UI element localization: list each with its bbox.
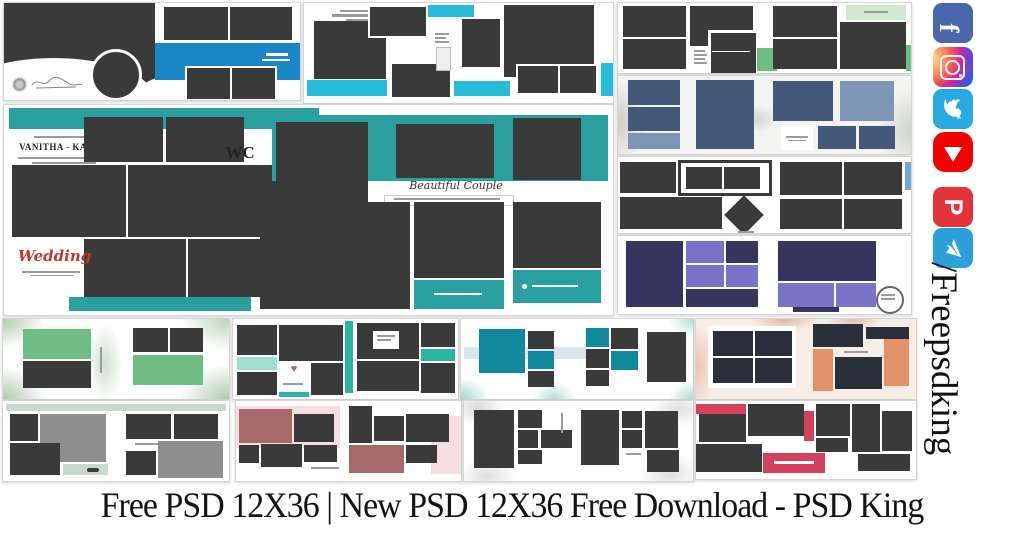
photo-placeholder bbox=[713, 331, 753, 356]
photo-placeholder bbox=[778, 283, 834, 307]
placeholder-text bbox=[774, 461, 814, 464]
placeholder-text bbox=[394, 198, 500, 200]
instagram-tile bbox=[933, 47, 973, 87]
color-block bbox=[804, 411, 814, 441]
caption-text: Free PSD 12X36 | New PSD 12X36 Free Down… bbox=[31, 484, 994, 526]
photo-placeholder bbox=[773, 39, 837, 69]
color-band bbox=[307, 80, 387, 96]
photo-placeholder bbox=[628, 80, 680, 105]
photo-placeholder bbox=[628, 107, 680, 131]
instagram-icon[interactable] bbox=[933, 47, 973, 87]
monogram-logo: WC bbox=[218, 143, 262, 163]
photo-placeholder bbox=[158, 441, 223, 478]
photo-placeholder bbox=[645, 411, 678, 448]
photo-placeholder bbox=[620, 162, 676, 193]
photo-placeholder bbox=[126, 451, 156, 475]
photo-placeholder bbox=[84, 117, 163, 162]
photo-placeholder bbox=[174, 414, 218, 439]
photo-placeholder bbox=[260, 202, 410, 309]
placeholder-text bbox=[694, 62, 707, 64]
placeholder-text bbox=[262, 59, 290, 61]
photo-placeholder bbox=[294, 414, 334, 442]
photo-placeholder bbox=[586, 328, 609, 347]
photo-placeholder bbox=[816, 438, 848, 452]
facebook-icon[interactable]: f bbox=[933, 3, 973, 43]
photo-placeholder bbox=[518, 450, 542, 464]
photo-placeholder bbox=[708, 30, 759, 74]
promo-image: VANITHA - KANNAN WC Wedding Beautiful Co… bbox=[0, 0, 1024, 536]
placeholder-text bbox=[100, 347, 102, 373]
photo-placeholder bbox=[558, 64, 598, 95]
photo-placeholder bbox=[23, 329, 91, 359]
photo-placeholder bbox=[840, 81, 894, 121]
photo-placeholder bbox=[780, 162, 842, 195]
photo-placeholder bbox=[686, 289, 758, 307]
template-thumbnail-14 bbox=[463, 400, 694, 482]
photo-placeholder bbox=[279, 325, 343, 361]
photo-placeholder bbox=[748, 404, 804, 436]
bullet-dot bbox=[522, 284, 527, 289]
photo-placeholder bbox=[858, 454, 910, 471]
template-thumbnail-6 bbox=[617, 235, 912, 315]
placeholder-text bbox=[626, 453, 641, 455]
photo-placeholder bbox=[793, 307, 839, 312]
photo-placeholder bbox=[699, 414, 746, 442]
color-band bbox=[63, 464, 108, 475]
photo-placeholder bbox=[239, 445, 259, 463]
photo-placeholder bbox=[513, 202, 601, 268]
photo-placeholder bbox=[357, 361, 419, 391]
photo-placeholder bbox=[696, 444, 762, 472]
photo-placeholder bbox=[518, 410, 542, 428]
photo-placeholder bbox=[581, 410, 619, 465]
template-thumbnail-1 bbox=[3, 2, 301, 101]
photo-placeholder bbox=[518, 430, 538, 448]
template-thumbnail-15 bbox=[695, 400, 917, 480]
color-block bbox=[813, 349, 833, 391]
photo-placeholder bbox=[396, 124, 494, 178]
photo-placeholder bbox=[844, 199, 902, 229]
photo-placeholder bbox=[10, 443, 60, 475]
photo-placeholder bbox=[882, 411, 912, 451]
placeholder-text bbox=[283, 383, 303, 385]
photo-placeholder bbox=[479, 329, 525, 373]
photo-placeholder bbox=[528, 331, 554, 349]
photo-placeholder bbox=[622, 430, 642, 448]
facebook-tile: f bbox=[933, 3, 973, 43]
placeholder-text bbox=[435, 37, 446, 39]
photo-placeholder bbox=[133, 328, 168, 352]
photo-placeholder bbox=[813, 324, 863, 347]
photo-placeholder bbox=[170, 328, 203, 352]
photo-placeholder bbox=[852, 404, 880, 452]
script-caption: Beautiful Couple bbox=[396, 179, 516, 192]
template-thumbnail-4 bbox=[617, 75, 912, 155]
photo-placeholder bbox=[304, 445, 337, 462]
photo-placeholder bbox=[611, 328, 638, 349]
color-band bbox=[345, 321, 353, 393]
twitter-bird-glyph bbox=[942, 98, 964, 120]
photo-placeholder bbox=[230, 7, 292, 40]
template-thumbnail-vanitha: VANITHA - KANNAN WC Wedding Beautiful Co… bbox=[3, 104, 614, 316]
play-glyph bbox=[944, 147, 962, 162]
laurel-badge-icon bbox=[876, 286, 904, 314]
photo-placeholder bbox=[866, 327, 909, 339]
pinterest-glyph: P bbox=[939, 199, 968, 216]
placeholder-text bbox=[22, 271, 80, 273]
photo-placeholder bbox=[239, 409, 292, 443]
photo-placeholder bbox=[713, 358, 753, 383]
photo-placeholder bbox=[778, 241, 876, 281]
photo-placeholder bbox=[421, 323, 455, 347]
diamond-photo-placeholder bbox=[724, 195, 764, 234]
frame-divider bbox=[712, 51, 750, 52]
crest-logo-icon bbox=[12, 77, 27, 92]
color-block bbox=[906, 45, 911, 71]
photo-placeholder bbox=[623, 39, 686, 69]
facebook-glyph: f bbox=[934, 24, 965, 33]
placeholder-text bbox=[532, 285, 578, 287]
photo-placeholder bbox=[23, 361, 91, 388]
photo-placeholder bbox=[628, 133, 680, 149]
photo-placeholder bbox=[816, 404, 850, 436]
photo-placeholder bbox=[586, 370, 609, 386]
photo-placeholder bbox=[349, 406, 372, 443]
instagram-camera-glyph bbox=[941, 55, 966, 80]
template-thumbnail-13 bbox=[235, 400, 462, 482]
photo-placeholder bbox=[686, 167, 722, 189]
youtube-icon[interactable] bbox=[933, 132, 973, 172]
photo-placeholder bbox=[647, 450, 679, 472]
photo-placeholder bbox=[276, 122, 368, 206]
caption-card bbox=[781, 126, 813, 150]
photo-placeholder bbox=[835, 357, 882, 389]
twitter-icon[interactable] bbox=[933, 89, 973, 129]
photo-placeholder bbox=[724, 167, 760, 189]
placeholder-text bbox=[881, 294, 895, 296]
color-band bbox=[279, 392, 309, 397]
placeholder-text bbox=[561, 413, 563, 433]
photo-placeholder bbox=[84, 239, 186, 297]
placeholder-text bbox=[266, 53, 288, 56]
photo-placeholder bbox=[311, 363, 343, 395]
photo-placeholder bbox=[622, 411, 642, 428]
photo-placeholder bbox=[773, 6, 837, 37]
placeholder-text bbox=[844, 351, 868, 353]
photo-placeholder bbox=[406, 445, 437, 463]
photo-placeholder bbox=[755, 331, 792, 356]
template-thumbnail-12 bbox=[2, 400, 230, 482]
photo-placeholder bbox=[726, 241, 758, 263]
photo-placeholder bbox=[686, 265, 724, 287]
script-title: Wedding bbox=[18, 247, 88, 265]
photo-placeholder bbox=[818, 126, 856, 149]
photo-placeholder bbox=[414, 202, 504, 278]
placeholder-text bbox=[788, 140, 806, 141]
placeholder-text bbox=[694, 54, 707, 56]
placeholder-text bbox=[435, 33, 449, 35]
template-thumbnail-3 bbox=[617, 2, 912, 74]
photo-placeholder bbox=[686, 241, 724, 263]
photo-placeholder bbox=[374, 416, 404, 441]
photo-placeholder bbox=[528, 371, 554, 387]
color-band bbox=[454, 81, 510, 96]
placeholder-text bbox=[694, 50, 705, 52]
template-thumbnail-5 bbox=[617, 156, 912, 234]
photo-placeholder bbox=[230, 66, 277, 101]
youtube-tile bbox=[933, 132, 973, 172]
photo-placeholder bbox=[237, 325, 277, 355]
photo-placeholder bbox=[406, 414, 449, 442]
color-band bbox=[696, 404, 746, 414]
photo-placeholder bbox=[623, 6, 686, 37]
color-block bbox=[884, 339, 909, 386]
photo-placeholder bbox=[844, 162, 902, 195]
photo-placeholder bbox=[261, 444, 302, 467]
color-band bbox=[69, 297, 251, 311]
photo-placeholder bbox=[755, 358, 792, 383]
placeholder-text bbox=[881, 298, 895, 300]
signature-scribble bbox=[30, 75, 84, 91]
photo-placeholder bbox=[840, 22, 906, 69]
template-thumbnail-8 bbox=[2, 318, 230, 400]
template-thumbnail-2 bbox=[303, 2, 614, 104]
photo-placeholder bbox=[859, 126, 895, 149]
placeholder-text bbox=[786, 136, 808, 138]
photo-placeholder bbox=[647, 332, 686, 382]
photo-placeholder bbox=[368, 5, 428, 38]
placeholder-text bbox=[435, 41, 449, 43]
heart-logo-card: ♥ bbox=[279, 363, 309, 391]
photo-placeholder bbox=[780, 199, 842, 229]
placeholder-text bbox=[738, 231, 754, 233]
color-band bbox=[428, 5, 474, 17]
template-thumbnail-10 bbox=[460, 318, 694, 400]
watermark-handle: /Freepsdking bbox=[922, 262, 965, 488]
color-band bbox=[421, 349, 455, 361]
photo-placeholder bbox=[541, 430, 572, 448]
circle-photo-placeholder bbox=[90, 49, 142, 101]
placeholder-text bbox=[377, 335, 395, 337]
photo-placeholder bbox=[10, 414, 38, 441]
color-band bbox=[237, 357, 277, 370]
photo-placeholder bbox=[185, 66, 232, 101]
paper-plane-glyph bbox=[942, 237, 964, 259]
placeholder-text bbox=[377, 339, 391, 341]
photo-placeholder bbox=[626, 241, 683, 307]
photo-placeholder bbox=[133, 355, 203, 385]
heart-icon: ♥ bbox=[291, 363, 298, 375]
placeholder-text bbox=[32, 162, 96, 164]
photo-placeholder bbox=[12, 165, 126, 237]
placeholder-text bbox=[30, 275, 74, 276]
placeholder-text bbox=[311, 467, 339, 469]
placeholder-text bbox=[434, 293, 482, 295]
twitter-tile bbox=[933, 89, 973, 129]
photo-placeholder bbox=[126, 414, 171, 439]
photo-placeholder bbox=[696, 80, 754, 149]
photo-placeholder bbox=[513, 118, 581, 180]
photo-placeholder bbox=[164, 7, 228, 40]
photo-placeholder bbox=[349, 445, 404, 473]
template-thumbnail-9: ♥ bbox=[232, 318, 459, 400]
color-band bbox=[6, 404, 226, 411]
photo-placeholder bbox=[726, 265, 758, 287]
color-band bbox=[601, 63, 613, 96]
photo-placeholder bbox=[237, 372, 277, 395]
photo-placeholder bbox=[586, 349, 609, 368]
photo-placeholder bbox=[421, 363, 455, 393]
caption-card bbox=[623, 449, 644, 462]
photo-placeholder bbox=[620, 197, 722, 229]
photo-placeholder bbox=[462, 19, 500, 67]
photo-placeholder bbox=[516, 64, 560, 95]
photo-placeholder bbox=[773, 81, 833, 121]
placeholder-text bbox=[694, 58, 705, 60]
pinterest-icon[interactable]: P bbox=[933, 187, 973, 227]
photo-placeholder bbox=[611, 351, 638, 370]
photo-placeholder bbox=[836, 283, 876, 307]
photo-placeholder bbox=[528, 351, 554, 369]
template-thumbnail-11 bbox=[695, 318, 917, 400]
pinterest-tile: P bbox=[933, 187, 973, 227]
photo-placeholder bbox=[474, 410, 514, 468]
placeholder-text bbox=[864, 11, 888, 13]
label-pill bbox=[87, 468, 99, 472]
color-block bbox=[905, 162, 911, 190]
small-frame bbox=[436, 47, 451, 71]
